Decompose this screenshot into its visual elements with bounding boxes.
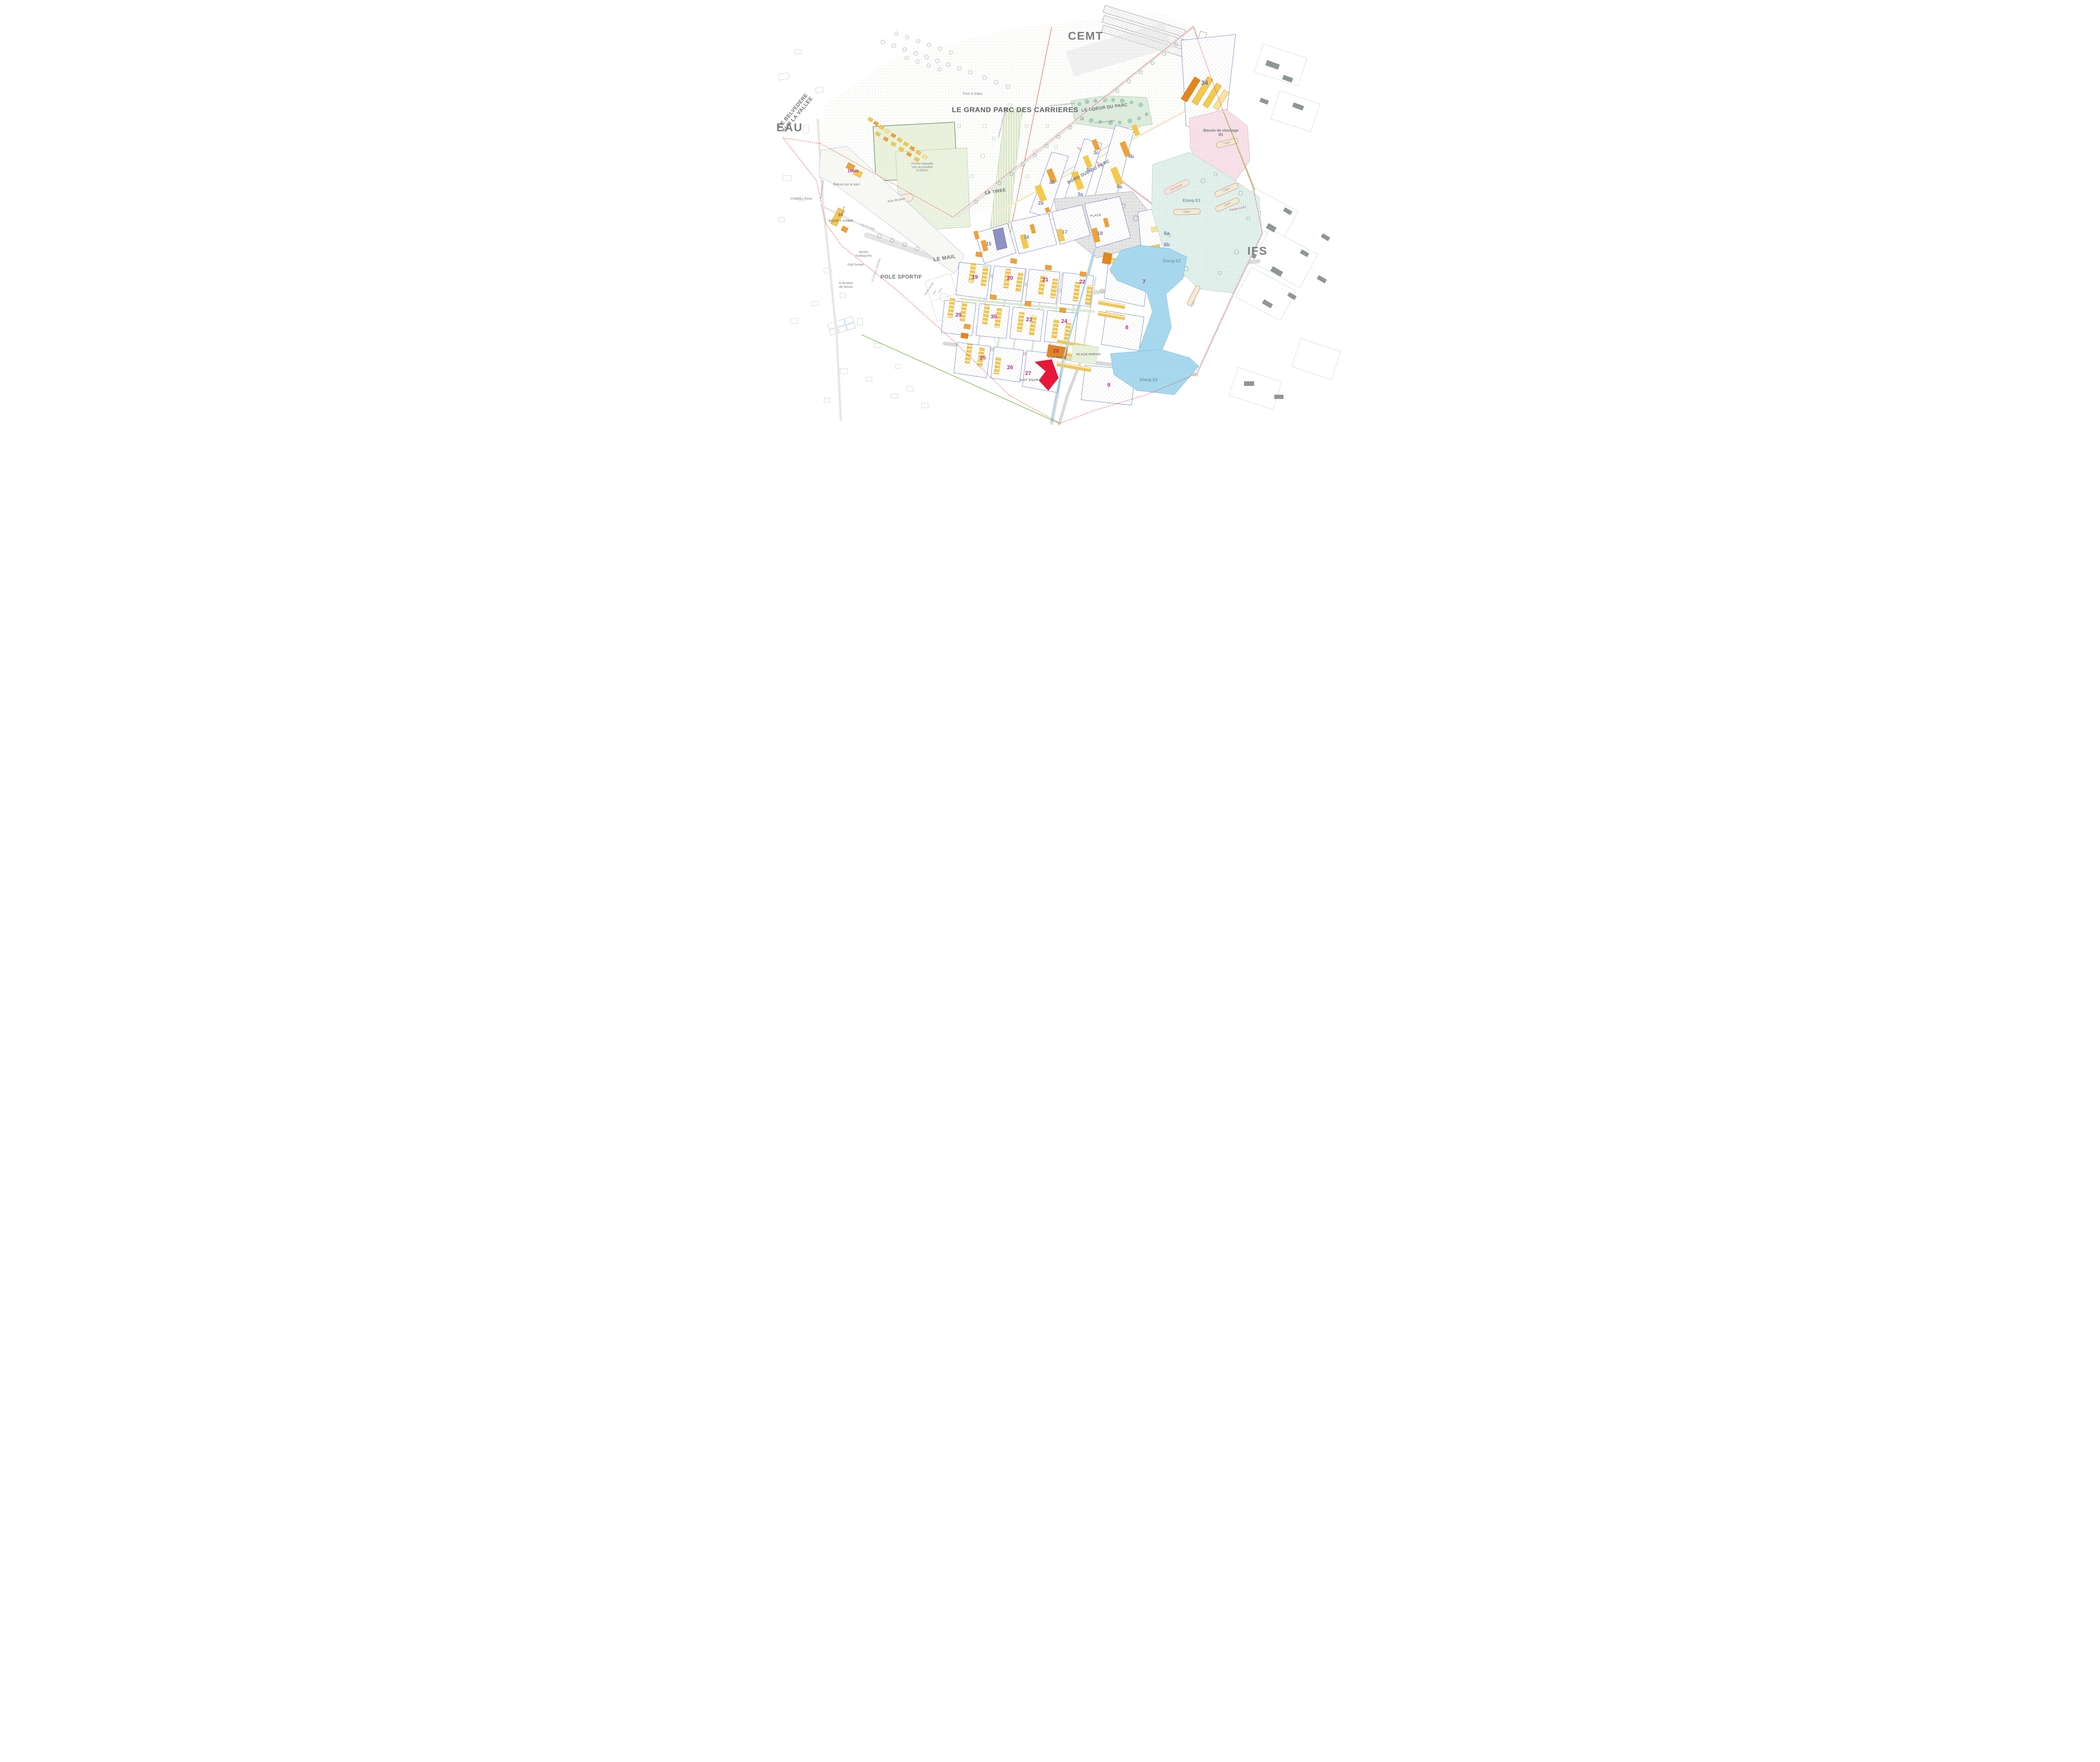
masterplan-map: CEMTLE GRAND PARC DES CARRIERESFour à ch… bbox=[716, 0, 1384, 440]
map-artwork bbox=[716, 0, 1384, 440]
place-parvis-green bbox=[1071, 344, 1099, 364]
